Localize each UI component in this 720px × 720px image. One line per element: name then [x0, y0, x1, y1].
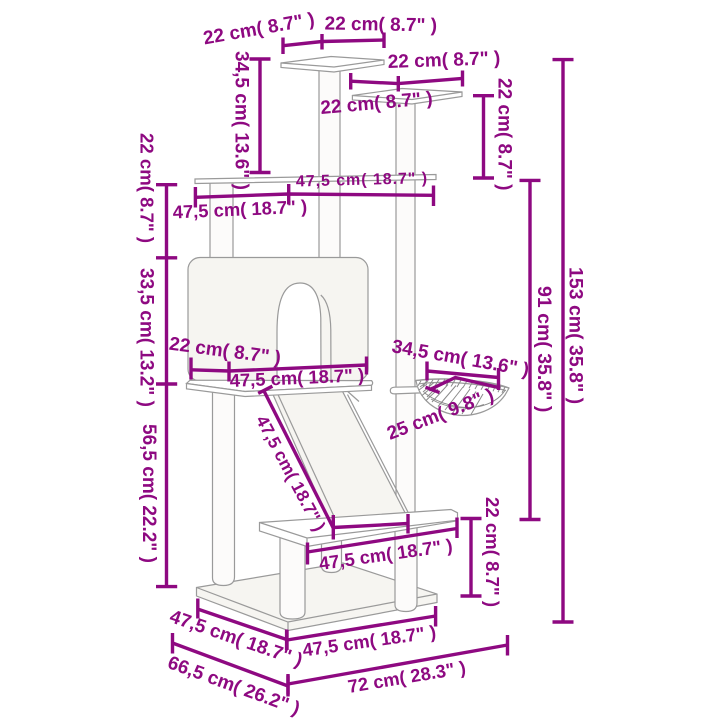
svg-text:56,5 cm( 22.2" ): 56,5 cm( 22.2" ) — [138, 424, 159, 563]
svg-text:153 cm( 35.8" ): 153 cm( 35.8" ) — [565, 267, 587, 404]
svg-text:34,5 cm( 13.6" ): 34,5 cm( 13.6" ) — [231, 51, 252, 190]
svg-text:47,5 cm( 18.7" ): 47,5 cm( 18.7" ) — [296, 170, 429, 190]
svg-text:22 cm( 8.7" ): 22 cm( 8.7" ) — [493, 78, 514, 191]
svg-text:22 cm( 8.7" ): 22 cm( 8.7" ) — [324, 14, 437, 37]
svg-text:22 cm( 8.7" ): 22 cm( 8.7" ) — [387, 48, 500, 73]
svg-text:22 cm( 8.7" ): 22 cm( 8.7" ) — [482, 497, 503, 607]
svg-text:22 cm( 8.7" ): 22 cm( 8.7" ) — [137, 133, 158, 243]
svg-text:91 cm( 35.8" ): 91 cm( 35.8" ) — [533, 286, 555, 412]
svg-text:33,5 cm( 13.2" ): 33,5 cm( 13.2" ) — [136, 268, 157, 407]
